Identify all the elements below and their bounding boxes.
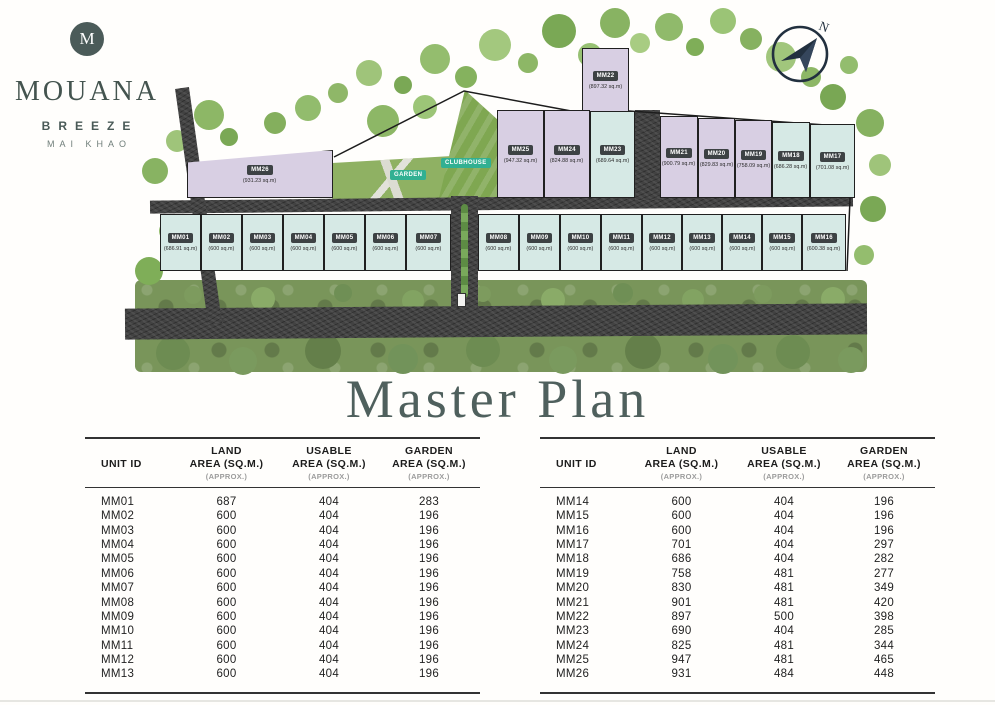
brochure-page: M MOUANA BREEZE MAI KHAO GARDEN CLUBHOUS…: [0, 0, 995, 705]
column-header-land-area: LAND AREA (SQ.M.) (APPROX.): [173, 438, 280, 487]
table-cell: 277: [833, 567, 935, 581]
table-row: MM14600404196: [540, 487, 935, 509]
unit-table-right: UNIT ID LAND AREA (SQ.M.) (APPROX.) USAB…: [540, 437, 935, 694]
table-cell: 600: [628, 509, 735, 523]
table-cell: MM22: [540, 610, 628, 624]
lot-area-label: (600 sq.m): [769, 246, 795, 251]
lot-id-badge: MM26: [247, 165, 273, 175]
table-cell: 404: [280, 667, 378, 692]
lot-id-badge: MM21: [666, 148, 692, 158]
plan-lot-MM03: MM03(600 sq.m): [242, 214, 283, 271]
compass-north-icon: N: [765, 14, 837, 88]
table-cell: 404: [735, 487, 833, 509]
table-row: MM16600404196: [540, 523, 935, 537]
table-cell: MM19: [540, 567, 628, 581]
plan-lot-MM19: MM19(758.09 sq.m): [735, 120, 772, 198]
lot-id-badge: MM11: [609, 233, 635, 243]
table-cell: 404: [735, 538, 833, 552]
table-cell: 196: [833, 487, 935, 509]
lot-id-badge: MM12: [649, 233, 675, 243]
lot-area-label: (600 sq.m): [649, 246, 675, 251]
lot-area-label: (897.32 sq.m): [589, 84, 622, 89]
lot-id-badge: MM06: [373, 233, 399, 243]
table-cell: 600: [173, 581, 280, 595]
table-cell: MM03: [85, 523, 173, 537]
unit-table-left: UNIT ID LAND AREA (SQ.M.) (APPROX.) USAB…: [85, 437, 480, 694]
table-row: MM04600404196: [85, 538, 480, 552]
table-row: MM11600404196: [85, 639, 480, 653]
table-cell: 600: [173, 567, 280, 581]
table-cell: 830: [628, 581, 735, 595]
plan-lot-MM13: MM13(600 sq.m): [682, 214, 722, 271]
table-body: MM01687404283MM02600404196MM03600404196M…: [85, 487, 480, 693]
plan-lot-MM24: MM24(824.88 sq.m): [544, 110, 590, 198]
table-cell: MM07: [85, 581, 173, 595]
table-cell: 404: [280, 509, 378, 523]
lot-area-label: (600 sq.m): [291, 246, 317, 251]
table-cell: 897: [628, 610, 735, 624]
lot-id-badge: MM23: [600, 145, 626, 155]
table-cell: 196: [378, 567, 480, 581]
table-cell: 600: [173, 667, 280, 692]
plan-lot-MM14: MM14(600 sq.m): [722, 214, 762, 271]
brand-monogram-icon: M: [70, 22, 104, 56]
table-cell: 465: [833, 653, 935, 667]
plan-lot-MM23: MM23(689.64 sq.m): [590, 111, 635, 198]
table-cell: 600: [628, 523, 735, 537]
column-header-unit-id: UNIT ID: [540, 438, 628, 487]
table-cell: 196: [378, 595, 480, 609]
table-cell: MM17: [540, 538, 628, 552]
lot-area-label: (829.83 sq.m): [700, 162, 733, 167]
table-cell: 600: [173, 538, 280, 552]
lot-id-badge: MM02: [209, 233, 235, 243]
table-cell: 701: [628, 538, 735, 552]
table-cell: 297: [833, 538, 935, 552]
table-cell: 600: [628, 487, 735, 509]
table-cell: 282: [833, 552, 935, 566]
main-road: [125, 303, 867, 339]
table-cell: 420: [833, 595, 935, 609]
road-median: [461, 204, 468, 298]
table-cell: 404: [280, 595, 378, 609]
table-cell: MM05: [85, 552, 173, 566]
plan-lot-MM06: MM06(600 sq.m): [365, 214, 406, 271]
lot-id-badge: MM24: [554, 145, 580, 155]
table-cell: MM10: [85, 624, 173, 638]
page-title: Master Plan: [0, 368, 995, 430]
table-cell: 404: [735, 523, 833, 537]
table-cell: MM26: [540, 667, 628, 692]
table-row: MM25947481465: [540, 653, 935, 667]
table-row: MM17701404297: [540, 538, 935, 552]
table-cell: 404: [280, 487, 378, 509]
table-cell: MM08: [85, 595, 173, 609]
table-body: MM14600404196MM15600404196MM16600404196M…: [540, 487, 935, 693]
table-cell: MM06: [85, 567, 173, 581]
plan-lot-MM04: MM04(600 sq.m): [283, 214, 324, 271]
lot-area-label: (824.88 sq.m): [550, 158, 583, 163]
lot-area-label: (600 sq.m): [332, 246, 358, 251]
gatehouse: [457, 293, 466, 307]
table-cell: 404: [280, 639, 378, 653]
table-cell: MM02: [85, 509, 173, 523]
table-row: MM26931484448: [540, 667, 935, 692]
lot-id-badge: MM25: [508, 145, 534, 155]
column-header-usable-area: USABLE AREA (SQ.M.) (APPROX.): [735, 438, 833, 487]
table-cell: 196: [378, 509, 480, 523]
table-cell: MM25: [540, 653, 628, 667]
table-cell: 283: [378, 487, 480, 509]
plan-lot-MM16: MM16(600.38 sq.m): [802, 214, 846, 271]
table-cell: 404: [280, 523, 378, 537]
table-cell: 448: [833, 667, 935, 692]
table-cell: 349: [833, 581, 935, 595]
plan-lot-MM26: MM26(931.23 sq.m): [187, 150, 333, 198]
plan-lot-MM10: MM10(600 sq.m): [560, 214, 601, 271]
table-cell: 196: [378, 610, 480, 624]
plan-lot-MM21: MM21(900.79 sq.m): [660, 116, 698, 198]
table-cell: 344: [833, 639, 935, 653]
column-header-usable-area: USABLE AREA (SQ.M.) (APPROX.): [280, 438, 378, 487]
compass-n-label: N: [817, 18, 832, 36]
lot-area-label: (600 sq.m): [209, 246, 235, 251]
lot-area-label: (600 sq.m): [609, 246, 635, 251]
lot-area-label: (600 sq.m): [689, 246, 715, 251]
upper-road: [635, 110, 660, 200]
lot-area-label: (600 sq.m): [486, 246, 512, 251]
table-header: UNIT ID LAND AREA (SQ.M.) (APPROX.) USAB…: [85, 438, 480, 487]
lot-id-badge: MM19: [741, 150, 767, 160]
brand-name: MOUANA: [12, 76, 162, 108]
table-cell: 825: [628, 639, 735, 653]
table-cell: 947: [628, 653, 735, 667]
table-cell: 404: [735, 552, 833, 566]
lot-id-badge: MM09: [527, 233, 553, 243]
lot-area-label: (600 sq.m): [568, 246, 594, 251]
table-row: MM12600404196: [85, 653, 480, 667]
lot-id-badge: MM05: [332, 233, 358, 243]
lot-id-badge: MM07: [416, 233, 442, 243]
table-cell: 600: [173, 653, 280, 667]
plan-lot-MM08: MM08(600 sq.m): [478, 214, 519, 271]
table-row: MM20830481349: [540, 581, 935, 595]
table-row: MM07600404196: [85, 581, 480, 595]
table-cell: MM18: [540, 552, 628, 566]
lot-area-label: (701.08 sq.m): [816, 165, 849, 170]
table-cell: MM21: [540, 595, 628, 609]
plan-lot-MM05: MM05(600 sq.m): [324, 214, 365, 271]
table-cell: 931: [628, 667, 735, 692]
table-header: UNIT ID LAND AREA (SQ.M.) (APPROX.) USAB…: [540, 438, 935, 487]
table-cell: 500: [735, 610, 833, 624]
table-row: MM09600404196: [85, 610, 480, 624]
lot-id-badge: MM03: [250, 233, 276, 243]
table-cell: 600: [173, 595, 280, 609]
garden-label: GARDEN: [390, 170, 426, 180]
lot-area-label: (931.23 sq.m): [243, 178, 276, 183]
table-cell: MM15: [540, 509, 628, 523]
table-cell: 196: [378, 667, 480, 692]
clubhouse-area: [438, 90, 502, 202]
table-cell: 196: [378, 653, 480, 667]
table-cell: 196: [378, 639, 480, 653]
table-cell: 196: [378, 581, 480, 595]
lot-id-badge: MM16: [811, 233, 837, 243]
table-cell: 600: [173, 552, 280, 566]
lot-id-badge: MM15: [769, 233, 795, 243]
table-row: MM05600404196: [85, 552, 480, 566]
table-cell: 196: [378, 523, 480, 537]
lot-id-badge: MM01: [168, 233, 194, 243]
lot-area-label: (947.32 sq.m): [504, 158, 537, 163]
table-cell: 481: [735, 567, 833, 581]
table-row: MM13600404196: [85, 667, 480, 692]
column-header-unit-id: UNIT ID: [85, 438, 173, 487]
table-cell: 481: [735, 653, 833, 667]
table-cell: 196: [378, 552, 480, 566]
lot-id-badge: MM17: [820, 152, 846, 162]
table-cell: 398: [833, 610, 935, 624]
table-cell: MM24: [540, 639, 628, 653]
lot-id-badge: MM14: [729, 233, 755, 243]
table-cell: 758: [628, 567, 735, 581]
lot-id-badge: MM13: [689, 233, 715, 243]
lot-area-label: (686.91 sq.m): [164, 246, 197, 251]
table-cell: 600: [173, 624, 280, 638]
table-cell: 600: [173, 610, 280, 624]
table-cell: MM04: [85, 538, 173, 552]
table-cell: 196: [378, 538, 480, 552]
table-cell: MM14: [540, 487, 628, 509]
lot-area-label: (689.64 sq.m): [596, 158, 629, 163]
table-cell: 901: [628, 595, 735, 609]
table-cell: 404: [280, 581, 378, 595]
column-header-land-area: LAND AREA (SQ.M.) (APPROX.): [628, 438, 735, 487]
lot-area-label: (600 sq.m): [250, 246, 276, 251]
table-cell: 687: [173, 487, 280, 509]
table-cell: 404: [280, 610, 378, 624]
table-cell: 404: [280, 538, 378, 552]
table-cell: MM12: [85, 653, 173, 667]
table-cell: 404: [280, 552, 378, 566]
table-cell: 404: [280, 567, 378, 581]
table-cell: 481: [735, 595, 833, 609]
table-row: MM08600404196: [85, 595, 480, 609]
table-row: MM24825481344: [540, 639, 935, 653]
plan-lot-MM22: MM22(897.32 sq.m): [582, 48, 629, 112]
table-cell: MM16: [540, 523, 628, 537]
lot-id-badge: MM10: [568, 233, 594, 243]
plan-lot-MM20: MM20(829.83 sq.m): [698, 118, 735, 198]
table-cell: MM11: [85, 639, 173, 653]
plan-lot-MM11: MM11(600 sq.m): [601, 214, 642, 271]
page-edge-line: [0, 700, 995, 702]
lot-area-label: (600.38 sq.m): [807, 246, 840, 251]
table-cell: 404: [280, 653, 378, 667]
table-row: MM01687404283: [85, 487, 480, 509]
table-cell: 600: [173, 509, 280, 523]
table-cell: 285: [833, 624, 935, 638]
plan-lot-MM15: MM15(600 sq.m): [762, 214, 802, 271]
table-cell: 690: [628, 624, 735, 638]
plan-lot-MM12: MM12(600 sq.m): [642, 214, 682, 271]
table-cell: MM01: [85, 487, 173, 509]
table-row: MM21901481420: [540, 595, 935, 609]
plan-lot-MM01: MM01(686.91 sq.m): [160, 214, 201, 271]
table-cell: 481: [735, 639, 833, 653]
entrance-road: [451, 196, 478, 308]
lot-area-label: (600 sq.m): [527, 246, 553, 251]
plan-lot-MM25: MM25(947.32 sq.m): [497, 110, 544, 198]
column-header-garden-area: GARDEN AREA (SQ.M.) (APPROX.): [833, 438, 935, 487]
table-cell: 404: [735, 509, 833, 523]
lot-area-label: (758.09 sq.m): [737, 163, 770, 168]
brand-location: MAI KHAO: [12, 139, 162, 149]
table-cell: MM23: [540, 624, 628, 638]
table-cell: 481: [735, 581, 833, 595]
table-row: MM22897500398: [540, 610, 935, 624]
table-row: MM18686404282: [540, 552, 935, 566]
plan-lot-MM09: MM09(600 sq.m): [519, 214, 560, 271]
clubhouse-label: CLUBHOUSE: [441, 158, 491, 168]
lot-area-label: (900.79 sq.m): [662, 161, 695, 166]
lot-area-label: (686.28 sq.m): [774, 164, 807, 169]
lot-area-label: (600 sq.m): [729, 246, 755, 251]
table-cell: 404: [280, 624, 378, 638]
lot-area-label: (600 sq.m): [373, 246, 399, 251]
table-row: MM19758481277: [540, 567, 935, 581]
table-row: MM06600404196: [85, 567, 480, 581]
table-cell: MM20: [540, 581, 628, 595]
lot-id-badge: MM20: [704, 149, 730, 159]
lot-id-badge: MM22: [593, 71, 619, 81]
table-cell: 686: [628, 552, 735, 566]
table-cell: 196: [833, 523, 935, 537]
lot-area-label: (600 sq.m): [416, 246, 442, 251]
plan-lot-MM02: MM02(600 sq.m): [201, 214, 242, 271]
table-cell: MM09: [85, 610, 173, 624]
column-header-garden-area: GARDEN AREA (SQ.M.) (APPROX.): [378, 438, 480, 487]
table-cell: MM13: [85, 667, 173, 692]
plan-lot-MM18: MM18(686.28 sq.m): [772, 122, 810, 198]
lot-id-badge: MM18: [778, 151, 804, 161]
brand-subtitle: BREEZE: [12, 119, 162, 133]
table-cell: 404: [735, 624, 833, 638]
table-cell: 600: [173, 639, 280, 653]
table-cell: 196: [833, 509, 935, 523]
brand-block: M MOUANA BREEZE MAI KHAO: [12, 22, 162, 149]
table-row: MM03600404196: [85, 523, 480, 537]
plan-lot-MM17: MM17(701.08 sq.m): [810, 124, 855, 198]
plan-lot-MM07: MM07(600 sq.m): [406, 214, 451, 271]
table-row: MM23690404285: [540, 624, 935, 638]
master-plan-illustration: GARDEN CLUBHOUSE MM01(686.91 sq.m)MM02(6…: [120, 0, 882, 372]
table-row: MM02600404196: [85, 509, 480, 523]
table-row: MM10600404196: [85, 624, 480, 638]
lot-id-badge: MM04: [291, 233, 317, 243]
table-cell: 196: [378, 624, 480, 638]
table-cell: 600: [173, 523, 280, 537]
table-row: MM15600404196: [540, 509, 935, 523]
lot-id-badge: MM08: [486, 233, 512, 243]
table-cell: 484: [735, 667, 833, 692]
